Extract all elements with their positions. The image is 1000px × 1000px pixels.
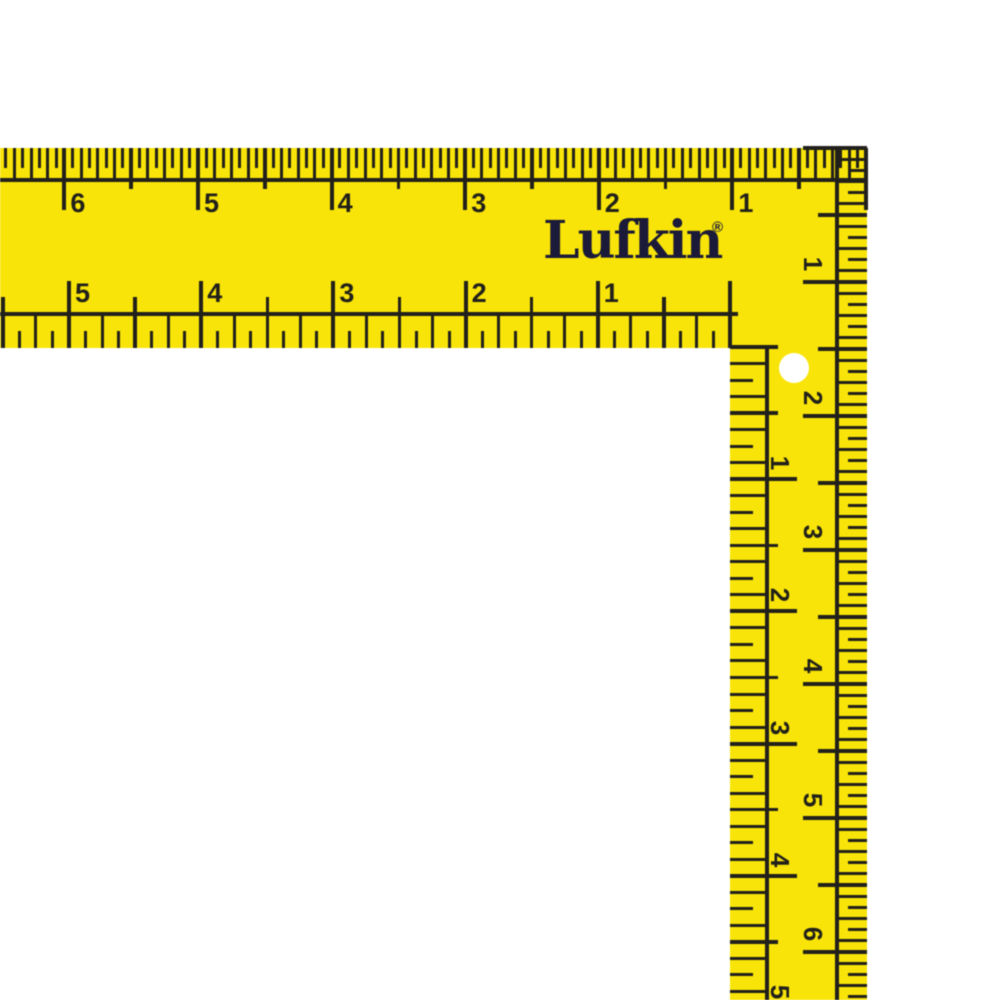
twelfth-inch-tick-short xyxy=(848,973,867,976)
twelfth-inch-tick-short xyxy=(848,660,867,663)
sixteenth-inch-tick xyxy=(171,148,174,168)
quarter-inch-tick xyxy=(497,312,500,348)
half-inch-tick xyxy=(530,297,534,348)
twelfth-inch-tick-short xyxy=(848,236,867,239)
inch-number: 2 xyxy=(765,580,795,610)
twelfth-inch-tick-short xyxy=(848,705,867,708)
sixteenth-inch-tick xyxy=(706,148,709,168)
eighth-inch-tick xyxy=(180,148,183,181)
twelfth-inch-tick-long xyxy=(835,805,867,808)
sixteenth-inch-tick xyxy=(105,148,108,168)
inch-tick xyxy=(803,816,867,820)
twelfth-inch-tick-long xyxy=(835,247,867,250)
sixteenth-inch-tick xyxy=(288,148,291,168)
eighth-inch-tick-long xyxy=(730,362,768,365)
eighth-inch-tick-short xyxy=(730,775,753,778)
eighth-inch-tick xyxy=(414,148,417,181)
twelfth-inch-tick-long xyxy=(835,939,867,942)
eighth-inch-tick xyxy=(51,331,54,348)
twelfth-inch-tick-short xyxy=(848,928,867,931)
sixteenth-inch-tick xyxy=(505,148,508,168)
inch-number: 4 xyxy=(338,190,353,217)
eighth-inch-tick-short xyxy=(730,973,753,976)
eighth-inch-tick-long xyxy=(730,560,768,563)
inch-number: 4 xyxy=(765,845,795,875)
twelfth-inch-tick-long xyxy=(835,292,867,295)
inch-number: 1 xyxy=(798,249,828,279)
inch-number: 1 xyxy=(604,280,619,307)
eighth-inch-tick xyxy=(348,331,351,348)
twelfth-inch-tick-long xyxy=(835,872,867,875)
half-inch-tick xyxy=(818,481,867,485)
inch-tick xyxy=(803,548,867,552)
sixteenth-inch-tick xyxy=(422,148,425,168)
inch-number: 6 xyxy=(798,919,828,949)
half-inch-tick xyxy=(818,615,867,619)
eighth-inch-tick-short xyxy=(730,445,753,448)
eighth-inch-tick xyxy=(150,331,153,348)
eighth-inch-tick xyxy=(514,331,517,348)
twelfth-inch-tick-long xyxy=(835,649,867,652)
twelfth-inch-tick-short xyxy=(848,437,867,440)
eighth-inch-tick xyxy=(183,331,186,348)
sixteenth-inch-tick xyxy=(472,148,475,168)
eighth-inch-tick xyxy=(430,148,433,181)
twelfth-inch-tick-long xyxy=(835,560,867,563)
eighth-inch-tick-long xyxy=(730,527,768,530)
twelfth-inch-tick-long xyxy=(835,180,867,183)
sixteenth-inch-tick xyxy=(489,148,492,168)
eighth-inch-tick xyxy=(698,148,701,181)
sixteenth-inch-tick xyxy=(739,148,742,168)
twelfth-inch-tick-long xyxy=(835,917,867,920)
eighth-inch-tick xyxy=(84,331,87,348)
twelfth-inch-tick-long xyxy=(835,158,867,161)
inch-tick xyxy=(464,281,468,348)
eighth-inch-tick xyxy=(96,148,99,181)
half-inch-tick xyxy=(730,940,778,944)
twelfth-inch-tick-short xyxy=(848,504,867,507)
eighth-inch-tick xyxy=(146,148,149,181)
inch-number: 1 xyxy=(738,190,753,217)
eighth-inch-tick xyxy=(481,331,484,348)
twelfth-inch-tick-long xyxy=(835,716,867,719)
sixteenth-inch-tick xyxy=(38,148,41,168)
inch-number: 5 xyxy=(75,280,90,307)
inch-tick xyxy=(62,148,66,210)
half-inch-tick xyxy=(530,148,534,189)
inch-number: 5 xyxy=(204,190,219,217)
quarter-inch-tick xyxy=(167,312,170,348)
sixteenth-inch-tick xyxy=(723,148,726,168)
eighth-inch-tick xyxy=(447,148,450,181)
twelfth-inch-tick-long xyxy=(835,627,867,630)
inch-tick xyxy=(803,280,867,284)
sixteenth-inch-tick xyxy=(155,148,158,168)
quarter-inch-tick xyxy=(431,312,434,348)
half-inch-tick xyxy=(398,297,402,348)
eighth-inch-tick-long xyxy=(730,693,768,696)
eighth-inch-tick xyxy=(580,331,583,348)
half-inch-tick xyxy=(797,148,801,189)
sixteenth-inch-tick xyxy=(205,148,208,168)
inch-tick xyxy=(196,148,200,210)
inch-tick xyxy=(463,148,467,210)
eighth-inch-tick xyxy=(564,148,567,181)
inch-number: 3 xyxy=(765,713,795,743)
eighth-inch-tick-short xyxy=(730,709,753,712)
inch-number: 4 xyxy=(798,651,828,681)
eighth-inch-tick-short xyxy=(730,841,753,844)
half-inch-tick xyxy=(818,749,867,753)
eighth-inch-tick xyxy=(480,148,483,181)
twelfth-inch-tick-short xyxy=(848,392,867,395)
bottom-scale-baseline xyxy=(0,312,738,316)
eighth-inch-tick xyxy=(380,148,383,181)
eighth-inch-tick xyxy=(547,148,550,181)
twelfth-inch-tick-long xyxy=(835,381,867,384)
sixteenth-inch-tick xyxy=(21,148,24,168)
twelfth-inch-tick-short xyxy=(848,191,867,194)
inch-tick xyxy=(199,281,203,348)
twelfth-inch-tick-short xyxy=(848,861,867,864)
eighth-inch-tick xyxy=(247,148,250,181)
twelfth-inch-tick-short xyxy=(848,772,867,775)
inch-number: 2 xyxy=(798,383,828,413)
half-inch-tick xyxy=(818,883,867,887)
half-inch-tick xyxy=(818,347,867,351)
sixteenth-inch-tick xyxy=(405,148,408,168)
eighth-inch-tick xyxy=(46,148,49,181)
eighth-inch-tick xyxy=(249,331,252,348)
framing-square-photo: 1234561234512345612345 Lufkin ® xyxy=(0,0,1000,1000)
brand-logo: Lufkin ® xyxy=(543,215,721,267)
half-inch-tick xyxy=(818,213,867,217)
eighth-inch-tick xyxy=(30,148,33,181)
half-inch-tick xyxy=(129,148,133,189)
eighth-inch-tick xyxy=(347,148,350,181)
eighth-inch-tick-long xyxy=(730,858,768,861)
eighth-inch-tick xyxy=(497,148,500,181)
sixteenth-inch-tick xyxy=(55,148,58,168)
eighth-inch-tick xyxy=(313,148,316,181)
twelfth-inch-tick-short xyxy=(848,303,867,306)
twelfth-inch-tick-short xyxy=(848,638,867,641)
sixteenth-inch-tick xyxy=(756,148,759,168)
sixteenth-inch-tick xyxy=(556,148,559,168)
sixteenth-inch-tick xyxy=(806,148,809,168)
sixteenth-inch-tick xyxy=(572,148,575,168)
hanging-hole xyxy=(779,353,809,383)
inch-tick xyxy=(597,148,601,210)
inch-number: 3 xyxy=(339,280,354,307)
half-inch-tick xyxy=(730,676,778,680)
eighth-inch-tick-long xyxy=(730,924,768,927)
twelfth-inch-tick-long xyxy=(835,448,867,451)
twelfth-inch-tick-long xyxy=(835,202,867,205)
inch-tick xyxy=(803,950,867,954)
twelfth-inch-tick-long xyxy=(835,403,867,406)
eighth-inch-tick-long xyxy=(730,395,768,398)
sixteenth-inch-tick xyxy=(121,148,124,168)
eighth-inch-tick xyxy=(714,148,717,181)
twelfth-inch-tick-long xyxy=(835,537,867,540)
sixteenth-inch-tick xyxy=(305,148,308,168)
twelfth-inch-tick-long xyxy=(835,694,867,697)
twelfth-inch-tick-short xyxy=(848,727,867,730)
quarter-inch-tick xyxy=(629,312,632,348)
twelfth-inch-tick-long xyxy=(835,336,867,339)
eighth-inch-tick xyxy=(679,331,682,348)
eighth-inch-tick-long xyxy=(730,461,768,464)
eighth-inch-tick xyxy=(514,148,517,181)
twelfth-inch-tick-long xyxy=(835,269,867,272)
sixteenth-inch-tick xyxy=(88,148,91,168)
eighth-inch-tick-long xyxy=(730,825,768,828)
inch-tick xyxy=(728,281,732,348)
sixteenth-inch-tick xyxy=(222,148,225,168)
eighth-inch-tick xyxy=(364,148,367,181)
inch-number: 2 xyxy=(472,280,487,307)
eighth-inch-tick xyxy=(614,148,617,181)
twelfth-inch-tick-long xyxy=(835,828,867,831)
twelfth-inch-tick-long xyxy=(835,962,867,965)
eighth-inch-tick xyxy=(581,148,584,181)
eighth-inch-tick xyxy=(764,148,767,181)
inch-tick xyxy=(803,414,867,418)
eighth-inch-tick xyxy=(781,148,784,181)
sixteenth-inch-tick xyxy=(71,148,74,168)
eighth-inch-tick xyxy=(831,148,834,181)
inch-number: 5 xyxy=(798,785,828,815)
quarter-inch-tick xyxy=(34,312,37,348)
twelfth-inch-tick-short xyxy=(848,906,867,909)
twelfth-inch-tick-long xyxy=(835,783,867,786)
eighth-inch-tick xyxy=(647,148,650,181)
eighth-inch-tick xyxy=(748,148,751,181)
half-inch-tick xyxy=(1,297,5,348)
inch-number: 4 xyxy=(207,280,222,307)
inch-number: 6 xyxy=(70,190,85,217)
inch-tick xyxy=(803,682,867,686)
twelfth-inch-tick-long xyxy=(835,671,867,674)
inner-vertical-baseline xyxy=(765,347,769,1000)
eighth-inch-tick xyxy=(631,148,634,181)
inch-number: 3 xyxy=(471,190,486,217)
eighth-inch-tick xyxy=(282,331,285,348)
quarter-inch-tick xyxy=(101,312,104,348)
zero-tick xyxy=(730,345,778,349)
twelfth-inch-tick-long xyxy=(835,515,867,518)
eighth-inch-tick xyxy=(381,331,384,348)
sixteenth-inch-tick xyxy=(238,148,241,168)
sixteenth-inch-tick xyxy=(138,148,141,168)
inch-tick xyxy=(596,281,600,348)
eighth-inch-tick xyxy=(80,148,83,181)
twelfth-inch-tick-long xyxy=(835,604,867,607)
eighth-inch-tick xyxy=(681,148,684,181)
twelfth-inch-tick-long xyxy=(835,761,867,764)
twelfth-inch-tick-short xyxy=(848,258,867,261)
eighth-inch-tick-long xyxy=(730,494,768,497)
half-inch-tick xyxy=(266,297,270,348)
sixteenth-inch-tick xyxy=(789,148,792,168)
sixteenth-inch-tick xyxy=(539,148,542,168)
inch-number: 5 xyxy=(765,977,795,1000)
sixteenth-inch-tick xyxy=(322,148,325,168)
twelfth-inch-tick-long xyxy=(835,895,867,898)
eighth-inch-tick xyxy=(213,148,216,181)
eighth-inch-tick-long xyxy=(730,428,768,431)
sixteenth-inch-tick xyxy=(639,148,642,168)
half-inch-tick xyxy=(662,297,666,348)
twelfth-inch-tick-long xyxy=(835,984,867,987)
brand-name: Lufkin xyxy=(543,210,721,271)
sixteenth-inch-tick xyxy=(823,148,826,168)
twelfth-inch-tick-long xyxy=(835,738,867,741)
twelfth-inch-tick-long xyxy=(835,314,867,317)
eighth-inch-tick-long xyxy=(730,659,768,662)
twelfth-inch-tick-short xyxy=(848,325,867,328)
eighth-inch-tick xyxy=(547,331,550,348)
registered-trademark-icon: ® xyxy=(712,220,723,235)
half-inch-tick xyxy=(730,808,778,812)
sixteenth-inch-tick xyxy=(606,148,609,168)
sixteenth-inch-tick xyxy=(773,148,776,168)
eighth-inch-tick xyxy=(613,331,616,348)
sixteenth-inch-tick xyxy=(372,148,375,168)
half-inch-tick xyxy=(263,148,267,189)
eighth-inch-tick-short xyxy=(730,511,753,514)
twelfth-inch-tick-long xyxy=(835,426,867,429)
sixteenth-inch-tick xyxy=(689,148,692,168)
twelfth-inch-tick-short xyxy=(848,571,867,574)
sixteenth-inch-tick xyxy=(455,148,458,168)
eighth-inch-tick xyxy=(13,148,16,181)
quarter-inch-tick xyxy=(563,312,566,348)
eighth-inch-tick xyxy=(712,331,715,348)
half-inch-tick xyxy=(730,411,778,415)
half-inch-tick xyxy=(730,544,778,548)
eighth-inch-tick-long xyxy=(730,726,768,729)
eighth-inch-tick xyxy=(315,331,318,348)
twelfth-inch-tick-short xyxy=(848,995,867,998)
sixteenth-inch-tick xyxy=(439,148,442,168)
twelfth-inch-tick-short xyxy=(848,794,867,797)
sixteenth-inch-tick xyxy=(4,148,7,168)
eighth-inch-tick-long xyxy=(730,990,768,993)
twelfth-inch-tick-short xyxy=(848,593,867,596)
twelfth-inch-tick-long xyxy=(835,850,867,853)
eighth-inch-tick xyxy=(646,331,649,348)
twelfth-inch-tick-short xyxy=(848,839,867,842)
inch-tick xyxy=(331,281,335,348)
sixteenth-inch-tick xyxy=(188,148,191,168)
inch-tick xyxy=(330,148,334,210)
sixteenth-inch-tick xyxy=(255,148,258,168)
eighth-inch-tick-short xyxy=(730,907,753,910)
twelfth-inch-tick-long xyxy=(835,225,867,228)
sixteenth-inch-tick xyxy=(589,148,592,168)
inch-tick xyxy=(730,148,734,210)
eighth-inch-tick xyxy=(297,148,300,181)
quarter-inch-tick xyxy=(299,312,302,348)
eighth-inch-tick-short xyxy=(730,577,753,580)
twelfth-inch-tick-long xyxy=(835,493,867,496)
sixteenth-inch-tick xyxy=(389,148,392,168)
eighth-inch-tick xyxy=(216,331,219,348)
quarter-inch-tick xyxy=(695,312,698,348)
twelfth-inch-tick-long xyxy=(835,359,867,362)
eighth-inch-tick-long xyxy=(730,759,768,762)
twelfth-inch-tick-short xyxy=(848,526,867,529)
twelfth-inch-tick-long xyxy=(835,582,867,585)
eighth-inch-tick xyxy=(113,148,116,181)
sixteenth-inch-tick xyxy=(672,148,675,168)
inch-tick xyxy=(67,281,71,348)
half-inch-tick xyxy=(133,297,137,348)
eighth-inch-tick-long xyxy=(730,792,768,795)
half-inch-tick xyxy=(664,148,668,189)
eighth-inch-tick-long xyxy=(730,626,768,629)
inch-number: 3 xyxy=(798,517,828,547)
eighth-inch-tick-long xyxy=(730,891,768,894)
twelfth-inch-tick-short xyxy=(848,370,867,373)
eighth-inch-tick-short xyxy=(730,643,753,646)
twelfth-inch-tick-long xyxy=(835,470,867,473)
quarter-inch-tick xyxy=(233,312,236,348)
twelfth-inch-tick-short xyxy=(848,169,867,172)
eighth-inch-tick-long xyxy=(730,957,768,960)
quarter-inch-tick xyxy=(365,312,368,348)
eighth-inch-tick xyxy=(415,331,418,348)
sixteenth-inch-tick xyxy=(522,148,525,168)
eighth-inch-tick xyxy=(848,148,851,181)
eighth-inch-tick-long xyxy=(730,593,768,596)
eighth-inch-tick xyxy=(814,148,817,181)
eighth-inch-tick xyxy=(163,148,166,181)
eighth-inch-tick xyxy=(230,148,233,181)
half-inch-tick xyxy=(397,148,401,189)
inch-number: 1 xyxy=(765,448,795,478)
sixteenth-inch-tick xyxy=(622,148,625,168)
inch-tick xyxy=(803,146,867,150)
eighth-inch-tick xyxy=(448,331,451,348)
eighth-inch-tick-short xyxy=(730,379,753,382)
eighth-inch-tick xyxy=(280,148,283,181)
sixteenth-inch-tick xyxy=(272,148,275,168)
eighth-inch-tick xyxy=(18,331,21,348)
sixteenth-inch-tick xyxy=(355,148,358,168)
twelfth-inch-tick-short xyxy=(848,459,867,462)
sixteenth-inch-tick xyxy=(656,148,659,168)
eighth-inch-tick xyxy=(117,331,120,348)
sixteenth-inch-tick xyxy=(338,148,341,168)
